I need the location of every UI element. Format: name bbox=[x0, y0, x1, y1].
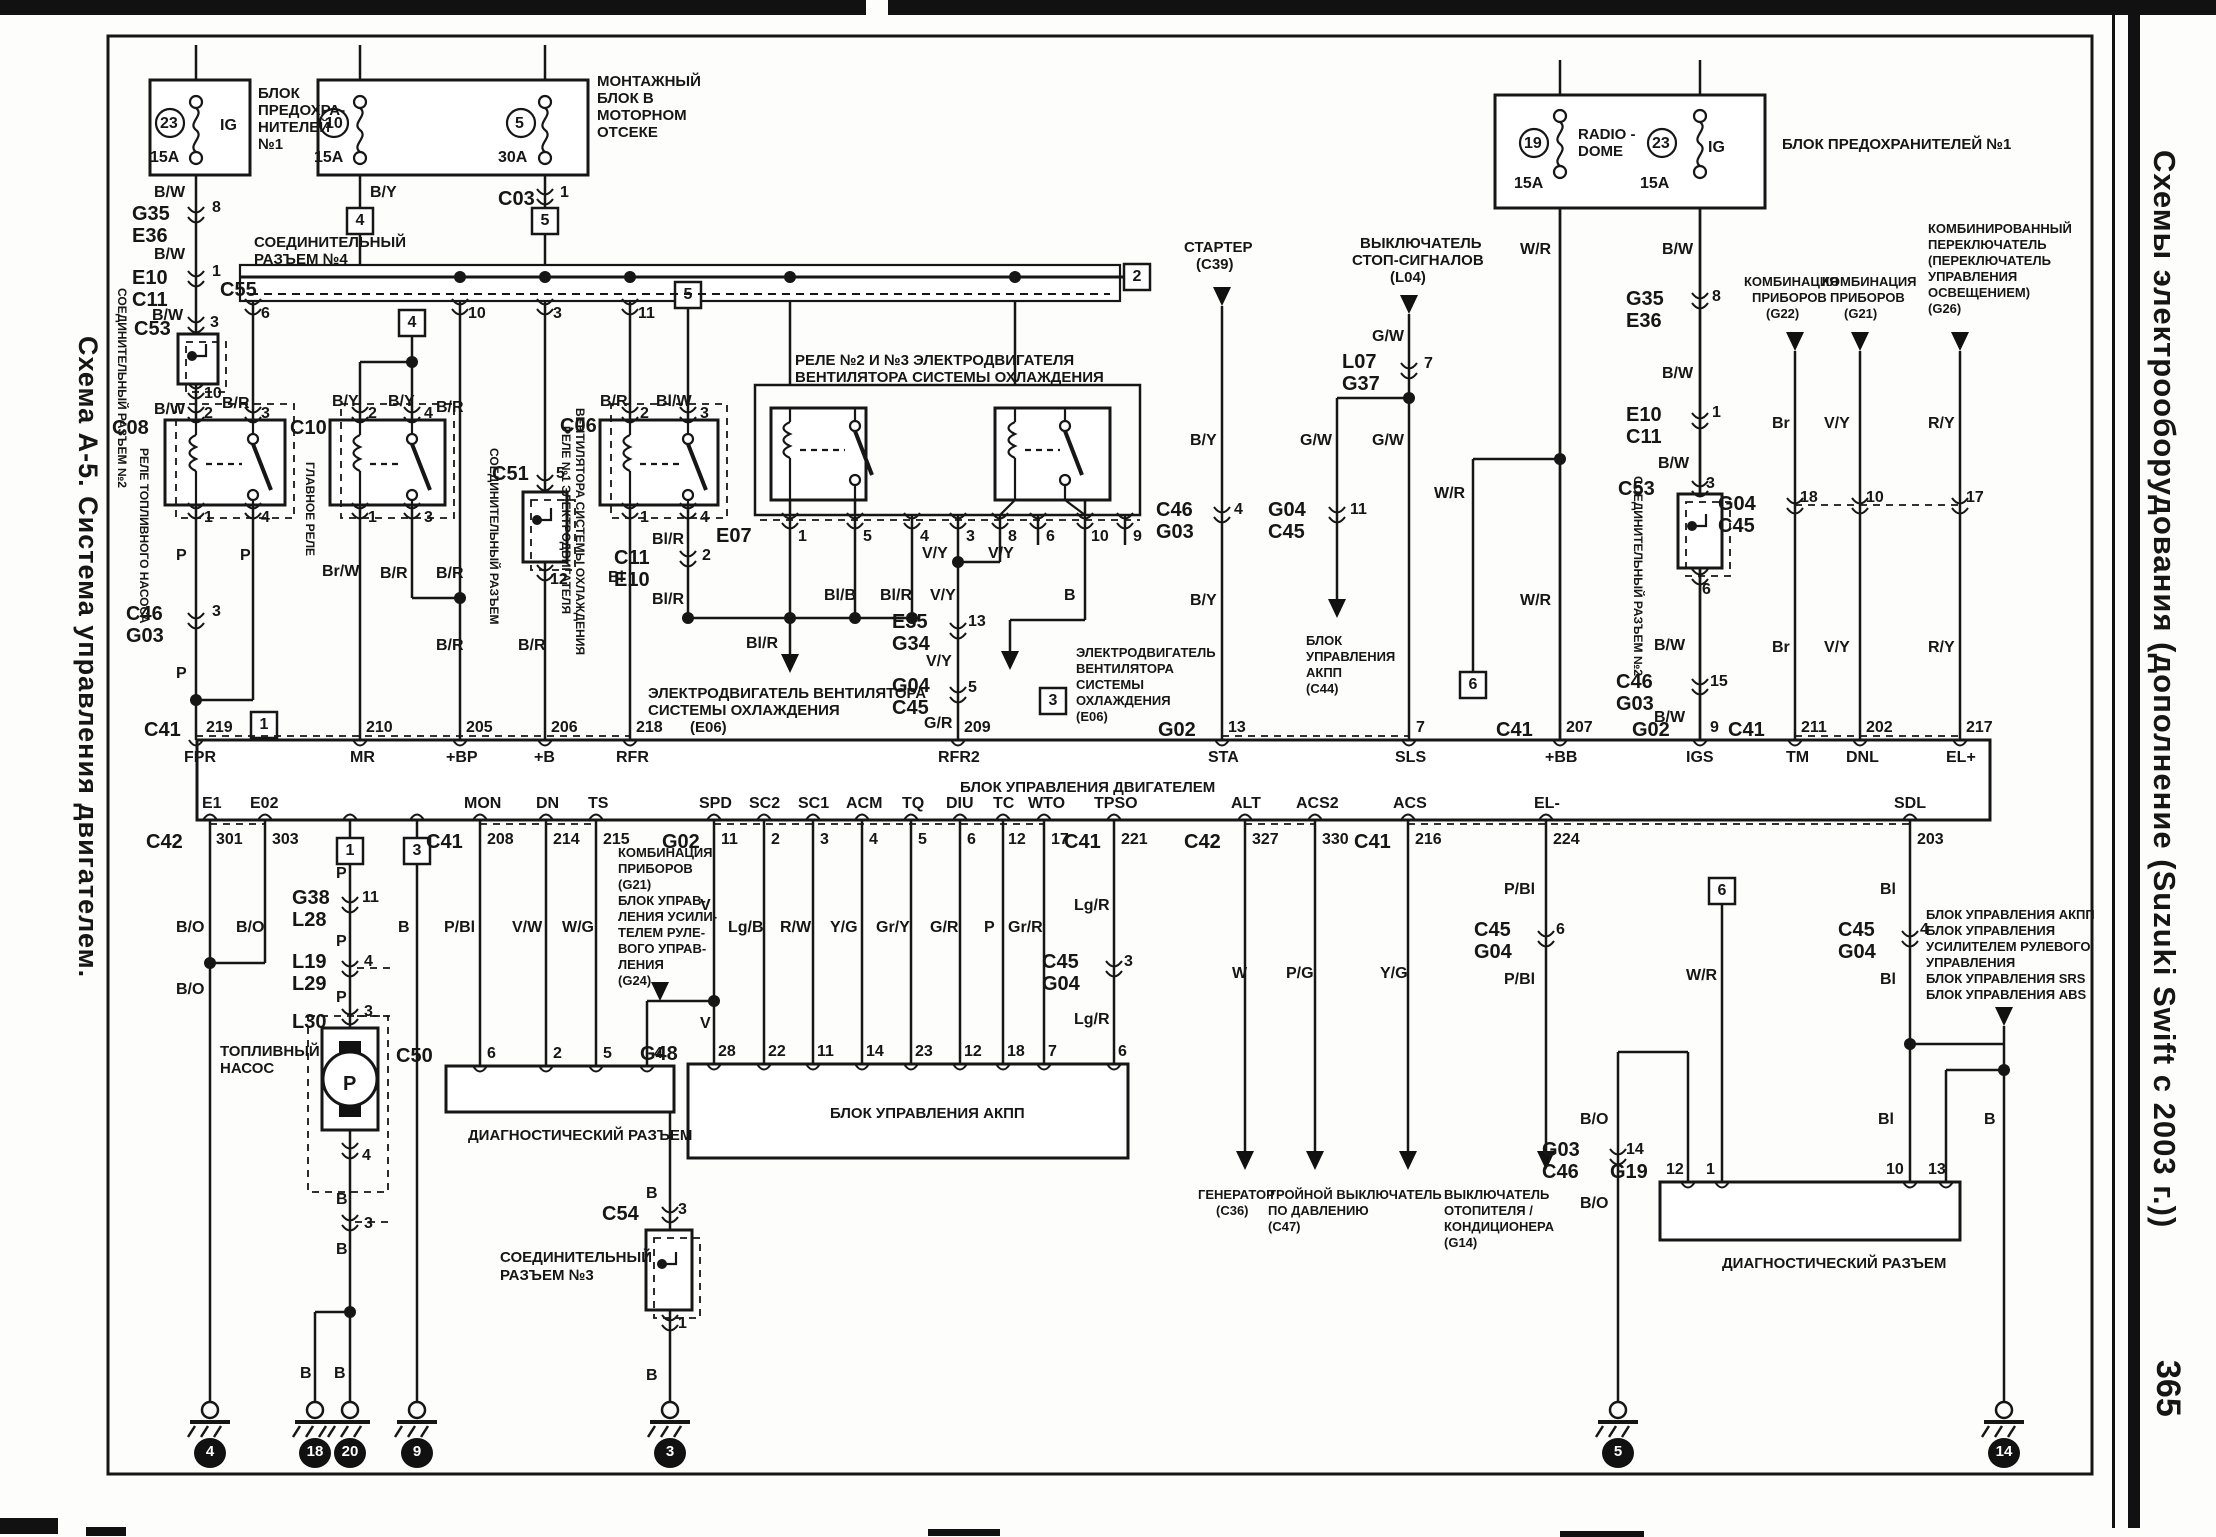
diagram-label: 303 bbox=[272, 832, 299, 848]
diagram-label: ПЕРЕКЛЮЧАТЕЛЬ bbox=[1928, 238, 2047, 251]
diagram-label: IG bbox=[220, 118, 237, 134]
diagram-label: B/W bbox=[1658, 456, 1689, 472]
diagram-label: 10 bbox=[325, 116, 343, 132]
diagram-label: 2 bbox=[1124, 264, 1150, 290]
diagram-label: B/O bbox=[236, 920, 264, 936]
diagram-label: ПРИБОРОВ bbox=[1752, 291, 1827, 304]
diagram-label: 1 bbox=[204, 510, 213, 526]
diagram-label: P/G bbox=[1286, 966, 1314, 982]
diagram-label: TS bbox=[588, 796, 608, 812]
diagram-label: НИТЕЛЕЙ bbox=[258, 120, 330, 135]
diagram-label: МОТОРНОМ bbox=[597, 108, 687, 123]
diagram-label: 14 bbox=[866, 1044, 884, 1060]
diagram-label: 3 bbox=[966, 529, 975, 545]
diagram-label: B/W bbox=[154, 185, 185, 201]
diagram-label: 6 bbox=[1556, 922, 1565, 938]
diagram-label: G04 bbox=[1042, 974, 1080, 994]
diagram-label: V/Y bbox=[1824, 640, 1850, 656]
diagram-label: E07 bbox=[716, 526, 752, 546]
diagram-label: 3 bbox=[700, 406, 709, 422]
diagram-label: Y/G bbox=[830, 920, 858, 936]
diagram-label: 6 bbox=[1702, 582, 1711, 598]
diagram-label: RFR2 bbox=[938, 750, 980, 766]
diagram-label: WTO bbox=[1028, 796, 1065, 812]
diagram-label: G38 bbox=[292, 888, 330, 908]
diagram-label: ДИАГНОСТИЧЕСКИЙ РАЗЪЕМ bbox=[468, 1128, 692, 1143]
diagram-label: B/Y bbox=[1190, 593, 1217, 609]
diagram-label: 3 bbox=[553, 306, 562, 322]
diagram-label: G04 bbox=[1268, 500, 1306, 520]
diagram-label: 1 bbox=[1712, 405, 1721, 421]
diagram-label: Gr/Y bbox=[876, 920, 910, 936]
diagram-label: 6 bbox=[1046, 529, 1055, 545]
diagram-label: ЛЕНИЯ bbox=[618, 958, 664, 971]
diagram-label: 2 bbox=[204, 406, 213, 422]
diagram-label: КОМБИНАЦИЯ bbox=[1822, 275, 1917, 288]
diagram-label: C11 bbox=[1626, 427, 1662, 447]
diagram-label: MON bbox=[464, 796, 501, 812]
diagram-label: ACM bbox=[846, 796, 882, 812]
diagram-label: G/W bbox=[1372, 433, 1404, 449]
diagram-label: C45 bbox=[1474, 920, 1511, 940]
diagram-label: P/Bl bbox=[444, 920, 475, 936]
diagram-label: G02 bbox=[1632, 720, 1670, 740]
diagram-label: V/Y bbox=[988, 546, 1014, 562]
diagram-label: W/R bbox=[1686, 968, 1717, 984]
diagram-label: B/Y bbox=[1190, 433, 1217, 449]
diagram-label: ОТСЕКЕ bbox=[597, 125, 658, 140]
diagram-label: 1 bbox=[798, 529, 807, 545]
diagram-label: +BP bbox=[446, 750, 478, 766]
diagram-label: 15A bbox=[314, 150, 343, 166]
diagram-label: B/O bbox=[1580, 1196, 1608, 1212]
diagram-label: 203 bbox=[1917, 832, 1944, 848]
diagram-label: СИСТЕМЫ bbox=[1076, 678, 1144, 691]
diagram-label: G03 bbox=[1156, 522, 1194, 542]
diagram-label: ДИАГНОСТИЧЕСКИЙ РАЗЪЕМ bbox=[1722, 1256, 1946, 1271]
diagram-label: (L04) bbox=[1390, 270, 1426, 285]
diagram-label: 216 bbox=[1415, 832, 1442, 848]
diagram-label: E36 bbox=[132, 226, 168, 246]
diagram-label: 12 bbox=[964, 1044, 982, 1060]
diagram-label: СОЕДИНИТЕЛЬНЫЙ bbox=[254, 235, 406, 250]
diagram-label: 18 bbox=[1800, 490, 1818, 506]
page-number: 365 bbox=[2148, 1360, 2187, 1417]
diagram-label: C46 bbox=[1542, 1162, 1579, 1182]
diagram-label: 1 bbox=[368, 510, 377, 526]
diagram-label: Bl/R bbox=[652, 592, 684, 608]
diagram-label: SC2 bbox=[749, 796, 780, 812]
diagram-label: 15A bbox=[1514, 176, 1543, 192]
diagram-label: Bl bbox=[1880, 882, 1896, 898]
diagram-label: 10 bbox=[1866, 490, 1884, 506]
diagram-label: 327 bbox=[1252, 832, 1279, 848]
diagram-label: УПРАВЛЕНИЯ bbox=[1928, 270, 2017, 283]
diagram-label: W bbox=[1232, 966, 1247, 982]
diagram-label: 3 bbox=[678, 1202, 687, 1218]
diagram-label: РЕЛЕ ТОПЛИВНОГО НАСОСА bbox=[138, 448, 150, 624]
diagram-label: (E06) bbox=[1076, 710, 1108, 723]
diagram-label: E10 bbox=[1626, 405, 1662, 425]
diagram-label: P bbox=[336, 990, 347, 1006]
diagram-label: TC bbox=[993, 796, 1014, 812]
diagram-label: 7 bbox=[1416, 720, 1425, 736]
diagram-label: 15A bbox=[1640, 176, 1669, 192]
diagram-label: G03 bbox=[1542, 1140, 1580, 1160]
diagram-label: (C44) bbox=[1306, 682, 1339, 695]
diagram-label: 23 bbox=[160, 116, 178, 132]
diagram-label: B bbox=[398, 920, 410, 936]
diagram-label: V/Y bbox=[922, 546, 948, 562]
diagram-label: 20 bbox=[334, 1444, 366, 1459]
diagram-label: 10 bbox=[1886, 1162, 1904, 1178]
diagram-label: 2 bbox=[640, 406, 649, 422]
diagram-label: ПРИБОРОВ bbox=[618, 862, 693, 875]
diagram-label: 18 bbox=[299, 1444, 331, 1459]
diagram-label: 3 bbox=[364, 1004, 373, 1020]
diagram-label: B bbox=[1064, 588, 1076, 604]
diagram-label: БЛОК УПРАВЛЕНИЯ SRS bbox=[1926, 972, 2085, 985]
diagram-label: 1 bbox=[251, 712, 277, 738]
diagram-label: 23 bbox=[915, 1044, 933, 1060]
diagram-label: C41 bbox=[1354, 832, 1391, 852]
diagram-label: ВЕНТИЛЯТОРА bbox=[1076, 662, 1174, 675]
diagram-label: B bbox=[646, 1368, 658, 1384]
diagram-label: 5 bbox=[515, 116, 524, 132]
diagram-label: IG bbox=[1708, 140, 1725, 156]
diagram-label: P bbox=[336, 934, 347, 950]
diagram-label: TM bbox=[1786, 750, 1809, 766]
diagram-label: (G24) bbox=[618, 974, 651, 987]
diagram-label: 2 bbox=[368, 406, 377, 422]
diagram-label: B/W bbox=[154, 247, 185, 263]
diagram-label: ОСВЕЩЕНИЕМ) bbox=[1928, 286, 2030, 299]
diagram-label: 210 bbox=[366, 720, 393, 736]
right-margin-title: Схемы электрооборудования (дополнение (S… bbox=[2146, 150, 2182, 1228]
diagram-label: 6 bbox=[1118, 1044, 1127, 1060]
diagram-label: V/W bbox=[512, 920, 542, 936]
diagram-label: Bl/W bbox=[656, 394, 692, 410]
diagram-label: TPSO bbox=[1094, 796, 1138, 812]
diagram-label: 11 bbox=[1350, 502, 1367, 518]
diagram-label: P bbox=[176, 548, 187, 564]
diagram-label: 19 bbox=[1524, 136, 1542, 152]
diagram-label: DN bbox=[536, 796, 559, 812]
diagram-label: 6 bbox=[967, 832, 976, 848]
diagram-label: 4 bbox=[1234, 502, 1243, 518]
diagram-label: B bbox=[646, 1186, 658, 1202]
diagram-label: L19 bbox=[292, 952, 326, 972]
diagram-label: Bl/B bbox=[824, 588, 856, 604]
diagram-label: ВЫКЛЮЧАТЕЛЬ bbox=[1360, 236, 1482, 251]
diagram-label: C41 bbox=[144, 720, 181, 740]
diagram-label: V/Y bbox=[1824, 416, 1850, 432]
diagram-label: SC1 bbox=[798, 796, 829, 812]
diagram-label: 6 bbox=[1709, 878, 1735, 904]
diagram-label: 6 bbox=[261, 306, 270, 322]
diagram-label: Lg/R bbox=[1074, 1012, 1110, 1028]
diagram-label: БЛОК УПРАВ- bbox=[618, 894, 706, 907]
diagram-label: 23 bbox=[1652, 136, 1670, 152]
diagram-label: G35 bbox=[1626, 289, 1664, 309]
diagram-label: L07 bbox=[1342, 352, 1376, 372]
diagram-label: СОЕДИНИТЕЛЬНЫЙ bbox=[500, 1250, 652, 1265]
diagram-label: B/R bbox=[518, 638, 546, 654]
diagram-label: (G22) bbox=[1766, 307, 1799, 320]
diagram-label: АКПП bbox=[1306, 666, 1342, 679]
diagram-label: EL- bbox=[1534, 796, 1560, 812]
diagram-label: Bl/R bbox=[652, 532, 684, 548]
diagram-label: 12 bbox=[1008, 832, 1026, 848]
diagram-label: БЛОК ПРЕДОХРАНИТЕЛЕЙ №1 bbox=[1782, 137, 2011, 152]
diagram-label: 330 bbox=[1322, 832, 1349, 848]
diagram-label: 4 bbox=[362, 1148, 371, 1164]
diagram-label: C41 bbox=[1728, 720, 1765, 740]
diagram-label: E1 bbox=[202, 796, 222, 812]
diagram-label: B/W bbox=[1654, 638, 1685, 654]
diagram-label: R/Y bbox=[1928, 640, 1955, 656]
diagram-label: B/R bbox=[436, 400, 464, 416]
diagram-label: ВЕНТИЛЯТОРА СИСТЕМЫ ОХЛАЖДЕНИЯ bbox=[574, 408, 586, 655]
diagram-label: E10 bbox=[132, 268, 168, 288]
diagram-label: Bl bbox=[1878, 1112, 1894, 1128]
diagram-label: SPD bbox=[699, 796, 732, 812]
diagram-label: ГЛАВНОЕ РЕЛЕ bbox=[304, 462, 316, 556]
diagram-label: STA bbox=[1208, 750, 1239, 766]
diagram-label: 5 bbox=[918, 832, 927, 848]
diagram-label: СОЕДИНИТЕЛЬНЫЙ РАЗЪЕМ №2 bbox=[116, 288, 128, 488]
diagram-label: 3 bbox=[364, 1216, 373, 1232]
diagram-label: ПО ДАВЛЕНИЮ bbox=[1268, 1204, 1369, 1217]
diagram-label: ВЕНТИЛЯТОРА СИСТЕМЫ ОХЛАЖДЕНИЯ bbox=[795, 370, 1104, 385]
diagram-label: СТОП-СИГНАЛОВ bbox=[1352, 253, 1484, 268]
diagram-label: C50 bbox=[396, 1046, 433, 1066]
diagram-label: C42 bbox=[146, 832, 183, 852]
left-margin-title: Схема А-5. Система управления двигателем… bbox=[72, 336, 103, 978]
diagram-label: 8 bbox=[1712, 289, 1721, 305]
diagram-label: E10 bbox=[614, 570, 650, 590]
diagram-label: B/R bbox=[436, 638, 464, 654]
diagram-label: 4 bbox=[920, 529, 929, 545]
diagram-label: P bbox=[343, 1074, 356, 1094]
diagram-label: Br bbox=[1772, 640, 1790, 656]
diagram-label: Y/G bbox=[1380, 966, 1408, 982]
diagram-label: P bbox=[336, 866, 347, 882]
diagram-label: 5 bbox=[1602, 1444, 1634, 1459]
diagram-label: СОЕДИНИТЕЛЬНЫЙ РАЗЪЕМ bbox=[488, 448, 500, 625]
diagram-label: B/W bbox=[154, 402, 185, 418]
diagram-label: 5 bbox=[968, 680, 977, 696]
diagram-label: СОЕДИНИТЕЛЬНЫЙ РАЗЪЕМ №2 bbox=[1632, 476, 1644, 676]
diagram-label: ГЕНЕРАТОР bbox=[1198, 1188, 1275, 1201]
diagram-label: 13 bbox=[968, 614, 986, 630]
diagram-label: 5 bbox=[675, 282, 701, 308]
diagram-label: (C47) bbox=[1268, 1220, 1301, 1233]
diagram-label: G03 bbox=[1616, 694, 1654, 714]
diagram-label: БЛОК УПРАВЛЕНИЯ ABS bbox=[1926, 988, 2086, 1001]
diagram-label: B/Y bbox=[388, 394, 415, 410]
diagram-label: РАЗЪЕМ №3 bbox=[500, 1268, 594, 1283]
diagram-label: (G14) bbox=[1444, 1236, 1477, 1249]
diagram-label: КОМБИНИРОВАННЫЙ bbox=[1928, 222, 2072, 235]
diagram-label: 15A bbox=[150, 150, 179, 166]
diagram-label: 5 bbox=[603, 1046, 612, 1062]
diagram-label: 4 bbox=[364, 954, 373, 970]
diagram-label: L29 bbox=[292, 974, 326, 994]
diagram-label: 3 bbox=[210, 315, 219, 331]
diagram-label: G02 bbox=[1158, 720, 1196, 740]
diagram-label: 208 bbox=[487, 832, 514, 848]
diagram-label: SLS bbox=[1395, 750, 1426, 766]
diagram-label: E36 bbox=[1626, 311, 1662, 331]
diagram-label: 10 bbox=[1091, 529, 1109, 545]
diagram-label: (G21) bbox=[618, 878, 651, 891]
diagram-label: 10 bbox=[204, 386, 222, 402]
diagram-label: 2 bbox=[702, 548, 711, 564]
diagram-label: ВЫКЛЮЧАТЕЛЬ bbox=[1444, 1188, 1549, 1201]
diagram-label: V/Y bbox=[930, 588, 956, 604]
diagram-label: G35 bbox=[132, 204, 170, 224]
diagram-label: B bbox=[336, 1242, 348, 1258]
diagram-label: B bbox=[300, 1366, 312, 1382]
diagram-label: 3 bbox=[1706, 476, 1715, 492]
diagram-label: 4 bbox=[700, 510, 709, 526]
diagram-label: B/O bbox=[176, 920, 204, 936]
diagram-label: E35 bbox=[892, 612, 928, 632]
diagram-label: W/G bbox=[562, 920, 594, 936]
diagram-label: (G21) bbox=[1844, 307, 1877, 320]
diagram-label: L28 bbox=[292, 910, 326, 930]
diagram-label: Lg/R bbox=[1074, 898, 1110, 914]
diagram-label: 8 bbox=[212, 200, 221, 216]
diagram-label: 4 bbox=[399, 310, 425, 336]
diagram-label: 30A bbox=[498, 150, 527, 166]
diagram-label: 3 bbox=[654, 1444, 686, 1459]
diagram-label: B/R bbox=[222, 396, 250, 412]
diagram-label: 17 bbox=[1966, 490, 1984, 506]
diagram-label: RFR bbox=[616, 750, 649, 766]
diagram-label: ПРИБОРОВ bbox=[1830, 291, 1905, 304]
diagram-label: БЛОК УПРАВЛЕНИЯ ДВИГАТЕЛЕМ bbox=[960, 780, 1215, 795]
diagram-label: W/R bbox=[1520, 593, 1551, 609]
diagram-label: C11 bbox=[614, 548, 650, 568]
diagram-label: P bbox=[176, 666, 187, 682]
diagram-label: 14 bbox=[1626, 1142, 1644, 1158]
diagram-label: 2 bbox=[771, 832, 780, 848]
diagram-label: P bbox=[240, 548, 251, 564]
diagram-label: 218 bbox=[636, 720, 663, 736]
diagram-label: C54 bbox=[602, 1204, 639, 1224]
diagram-label: 214 bbox=[553, 832, 580, 848]
diagram-label: E02 bbox=[250, 796, 278, 812]
diagram-label: БЛОК В bbox=[597, 91, 654, 106]
diagram-label: C45 bbox=[1042, 952, 1079, 972]
diagram-label: 4 bbox=[869, 832, 878, 848]
diagram-label: C46 bbox=[1156, 500, 1193, 520]
diagram-label: ACS bbox=[1393, 796, 1427, 812]
diagram-label: 6 bbox=[487, 1046, 496, 1062]
diagram-label: ТЕЛЕМ РУЛЕ- bbox=[618, 926, 705, 939]
diagram-label: 3 bbox=[1124, 954, 1133, 970]
diagram-label: ALT bbox=[1231, 796, 1261, 812]
diagram-label: 1 bbox=[212, 264, 221, 280]
diagram-label: B bbox=[334, 1366, 346, 1382]
diagram-label: 11 bbox=[362, 890, 379, 906]
diagram-label: C03 bbox=[498, 189, 535, 209]
diagram-label: B/R bbox=[380, 566, 408, 582]
diagram-label: V/Y bbox=[926, 654, 952, 670]
diagram-label: Bl/R bbox=[880, 588, 912, 604]
diagram-label: R/W bbox=[780, 920, 811, 936]
diagram-label: MR bbox=[350, 750, 375, 766]
diagram-label: 6 bbox=[1460, 672, 1486, 698]
diagram-label: 5 bbox=[863, 529, 872, 545]
diagram-label: G04 bbox=[1718, 494, 1756, 514]
diagram-label: Gr/R bbox=[1008, 920, 1043, 936]
diagram-label: УСИЛИТЕЛЕМ РУЛЕВОГО bbox=[1926, 940, 2091, 953]
diagram-label: 224 bbox=[1553, 832, 1580, 848]
diagram-label: 12 bbox=[1666, 1162, 1684, 1178]
diagram-label: B/O bbox=[1580, 1112, 1608, 1128]
diagram-label: 5 bbox=[532, 208, 558, 234]
diagram-label: 18 bbox=[1007, 1044, 1025, 1060]
diagram-label: ЭЛЕКТРОДВИГАТЕЛЬ ВЕНТИЛЯТОРА bbox=[648, 686, 926, 701]
diagram-label: 4 bbox=[424, 406, 433, 422]
diagram-label: 14 bbox=[1988, 1444, 2020, 1459]
diagram-label: КОМБИНАЦИЯ bbox=[618, 846, 713, 859]
diagram-label: P bbox=[984, 920, 995, 936]
diagram-label: 22 bbox=[768, 1044, 786, 1060]
diagram-label: БЛОК bbox=[1306, 634, 1342, 647]
diagram-label: (E06) bbox=[690, 720, 727, 735]
diagram-label: G37 bbox=[1342, 374, 1380, 394]
diagram-label: 4 bbox=[261, 510, 270, 526]
diagram-label: 9 bbox=[1710, 720, 1719, 736]
diagram-label: G/R bbox=[930, 920, 958, 936]
diagram-label: 4 bbox=[347, 208, 373, 234]
diagram-label: C45 bbox=[1838, 920, 1875, 940]
diagram-label: 206 bbox=[551, 720, 578, 736]
diagram-label: FPR bbox=[184, 750, 216, 766]
diagram-label: УПРАВЛЕНИЯ bbox=[1306, 650, 1395, 663]
diagram-label: B/Y bbox=[370, 185, 397, 201]
diagram-label: Bl/R bbox=[746, 636, 778, 652]
diagram-label: G/W bbox=[1372, 329, 1404, 345]
diagram-label: B/R bbox=[436, 566, 464, 582]
diagram-label: (ПЕРЕКЛЮЧАТЕЛЬ bbox=[1928, 254, 2051, 267]
diagram-label: 10 bbox=[468, 306, 486, 322]
diagram-label: B/R bbox=[600, 394, 628, 410]
diagram-label: L30 bbox=[292, 1012, 326, 1032]
diagram-label: 3 bbox=[424, 510, 433, 526]
diagram-label: РЕЛЕ №1 ЭЛЕКТРОДВИГАТЕЛЯ bbox=[560, 426, 572, 614]
diagram-label: C10 bbox=[290, 418, 327, 438]
diagram-label: B bbox=[336, 1192, 348, 1208]
diagram-label: СТАРТЕР bbox=[1184, 240, 1253, 255]
diagram-label: Bl bbox=[1880, 972, 1896, 988]
diagram-label: G04 bbox=[1474, 942, 1512, 962]
diagram-label: G03 bbox=[126, 626, 164, 646]
diagram-label: ТРОЙНОЙ ВЫКЛЮЧАТЕЛЬ bbox=[1268, 1188, 1442, 1201]
diagram-label: Br bbox=[1772, 416, 1790, 432]
diagram-label: 11 bbox=[817, 1044, 834, 1060]
diagram-label: +BB bbox=[1545, 750, 1577, 766]
diagram-label: Lg/B bbox=[728, 920, 764, 936]
diagram-label: 4 bbox=[194, 1444, 226, 1459]
diagram-label: EL+ bbox=[1946, 750, 1976, 766]
diagram-label: (C39) bbox=[1196, 257, 1234, 272]
diagram-label: P/Bl bbox=[1504, 882, 1535, 898]
